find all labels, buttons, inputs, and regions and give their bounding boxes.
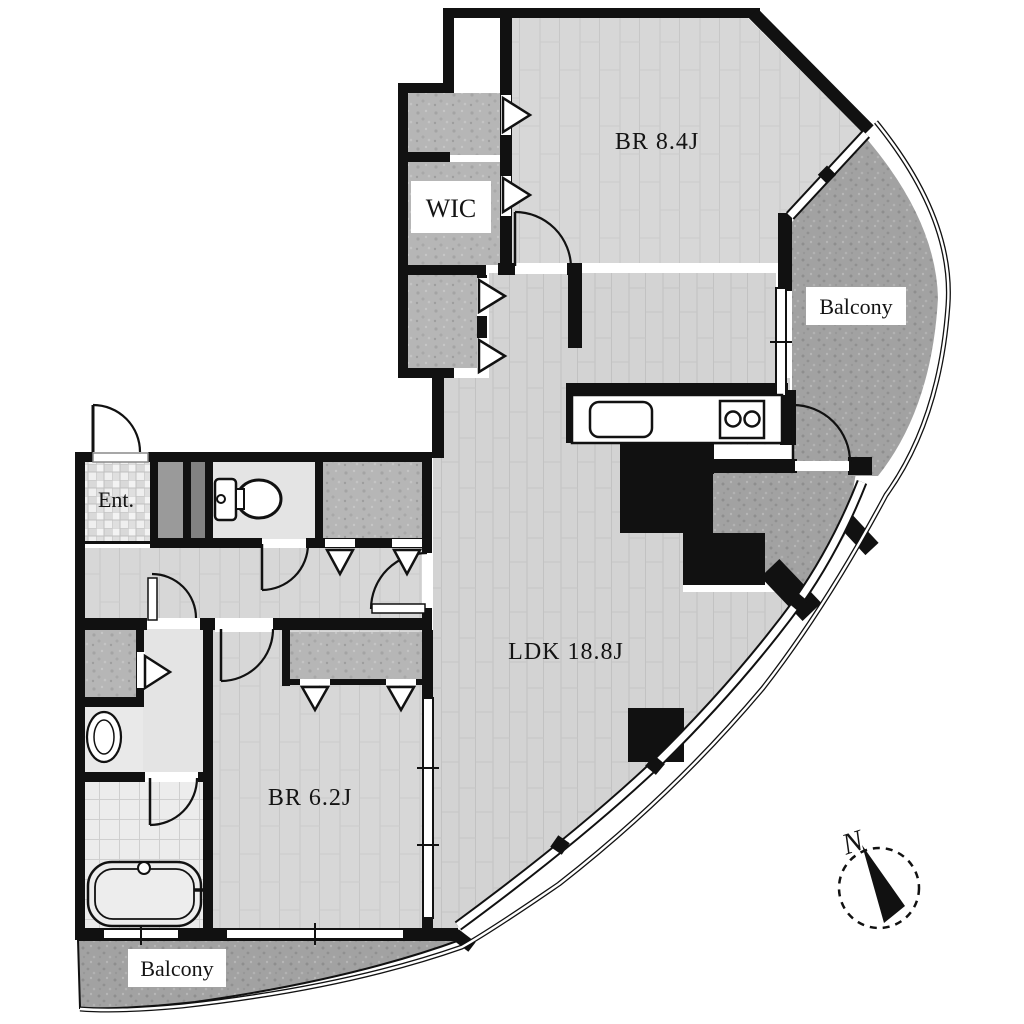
wic-label: WIC bbox=[426, 194, 477, 223]
floor-plan-drawing: BR 8.4J WIC Balcony Ent. LDK 18.8J BR 6.… bbox=[0, 0, 1024, 1024]
balcony-lower-label: Balcony bbox=[140, 956, 213, 981]
ldk-label: LDK 18.8J bbox=[508, 639, 624, 665]
stove-icon bbox=[720, 401, 764, 438]
closet-top-cell-floor bbox=[408, 93, 500, 155]
bathtub-icon bbox=[88, 862, 211, 926]
kitchen-sink bbox=[590, 402, 652, 437]
entry-cabinet-b bbox=[191, 462, 205, 540]
bedroom-main-label: BR 8.4J bbox=[615, 129, 699, 155]
toilet-icon bbox=[215, 479, 281, 520]
washroom-floor bbox=[143, 628, 203, 772]
kitchen-counter bbox=[572, 395, 782, 443]
hall-closet-floor bbox=[323, 462, 422, 540]
washbasin-icon bbox=[87, 712, 121, 762]
bedroom-second-closet-floor bbox=[290, 632, 424, 679]
kitchen-front-floor bbox=[582, 273, 776, 385]
balcony-upper-label: Balcony bbox=[819, 294, 892, 319]
washroom-closet-floor bbox=[85, 628, 136, 697]
hall-upper-floor bbox=[489, 273, 570, 385]
bedroom-second-label: BR 6.2J bbox=[268, 785, 352, 811]
entrance-label: Ent. bbox=[98, 487, 134, 512]
closet-lower-cell-floor bbox=[408, 275, 477, 368]
pillar bbox=[628, 708, 684, 762]
entry-cabinet-a bbox=[158, 462, 183, 540]
entrance-door-leaf bbox=[93, 453, 148, 462]
floor-plan-page: BR 8.4J WIC Balcony Ent. LDK 18.8J BR 6.… bbox=[0, 0, 1024, 1024]
